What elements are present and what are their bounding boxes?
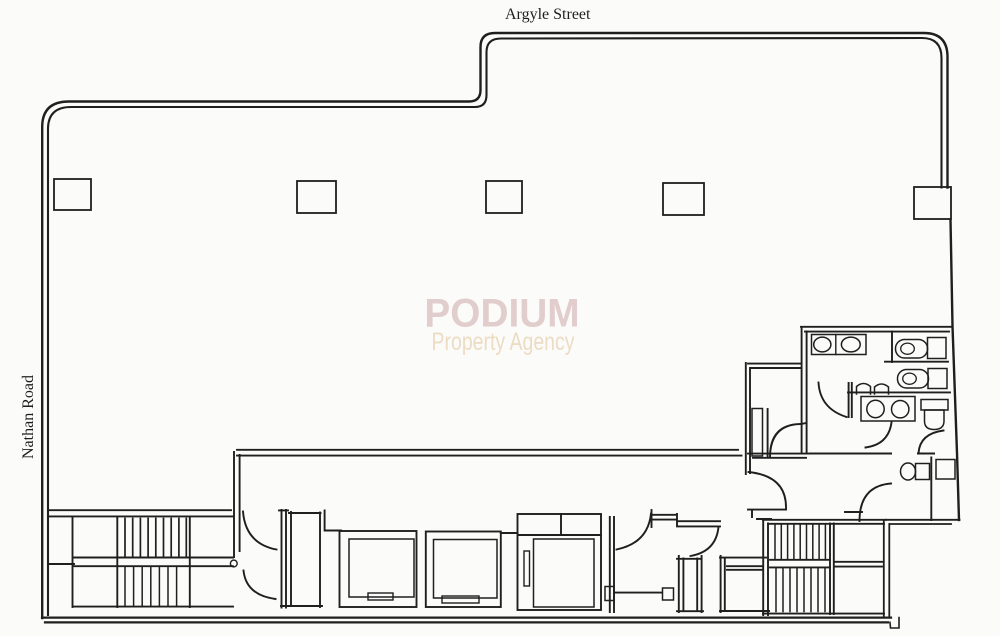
svg-text:Property Agency: Property Agency — [432, 328, 576, 356]
svg-text:Nathan Road: Nathan Road — [20, 375, 37, 459]
svg-text:Argyle Street: Argyle Street — [505, 6, 591, 23]
